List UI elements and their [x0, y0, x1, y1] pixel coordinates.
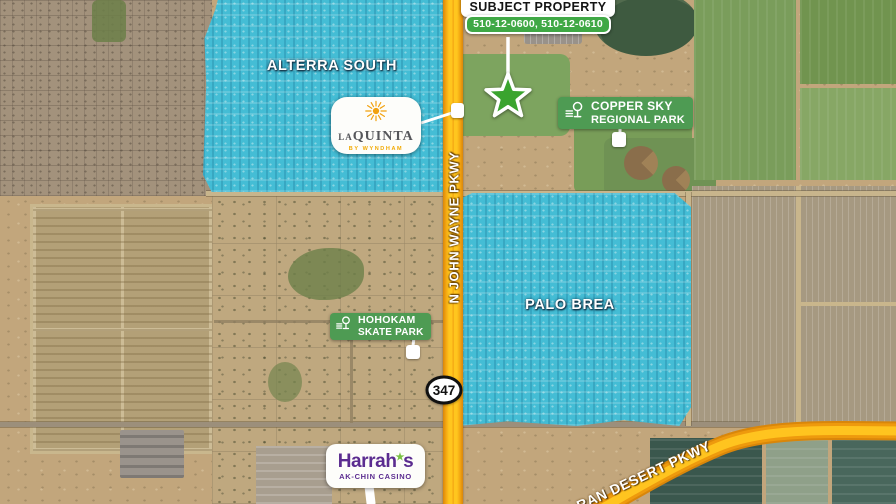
subject-property-callout: SUBJECT PROPERTY 510-12-0600, 510-12-061… [450, 0, 626, 34]
poi-hohokam-skate-park: HOHOKAM SKATE PARK [330, 313, 431, 340]
route-shield-number: 347 [433, 383, 456, 398]
park-icon [564, 100, 585, 126]
connector-laquinta [421, 112, 455, 123]
location-marker-hohokam [406, 345, 420, 359]
poi-copper-sky-line1: COPPER SKY [591, 100, 685, 113]
laquinta-tagline: BY WYNDHAM [349, 146, 403, 152]
poi-copper-sky-line2: REGIONAL PARK [591, 114, 685, 126]
label-palo-brea: PALO BREA [460, 297, 680, 313]
sunburst-icon [364, 100, 388, 127]
park-icon [335, 315, 352, 337]
location-marker-laquinta [451, 103, 464, 118]
poi-hohokam-line1: HOHOKAM [358, 315, 424, 327]
poi-copper-sky-regional-park: COPPER SKY REGIONAL PARK [558, 97, 693, 129]
laquinta-wordmark: LAQUINTA [338, 128, 413, 144]
location-marker-copper-sky [612, 132, 626, 147]
route-shield-347: 347 [427, 377, 461, 403]
poi-hohokam-line2: SKATE PARK [358, 327, 424, 338]
poi-harrahs-card: Harrah★s AK-CHIN CASINO [326, 444, 425, 488]
subject-property-parcels: 510-12-0600, 510-12-0610 [465, 15, 611, 34]
aerial-map: 347 ALTERRA SOUTH PALO BREA N JOHN WAYNE… [0, 0, 896, 504]
harrahs-subtitle: AK-CHIN CASINO [339, 472, 412, 481]
label-john-wayne-pkwy: N JOHN WAYNE PKWY [447, 148, 462, 308]
harrahs-wordmark: Harrah★s [338, 452, 414, 471]
poi-laquinta-card: LAQUINTA BY WYNDHAM [331, 97, 421, 154]
subject-star-icon [486, 74, 530, 116]
connector-harrahs [369, 486, 371, 503]
label-alterra-south: ALTERRA SOUTH [222, 58, 442, 74]
